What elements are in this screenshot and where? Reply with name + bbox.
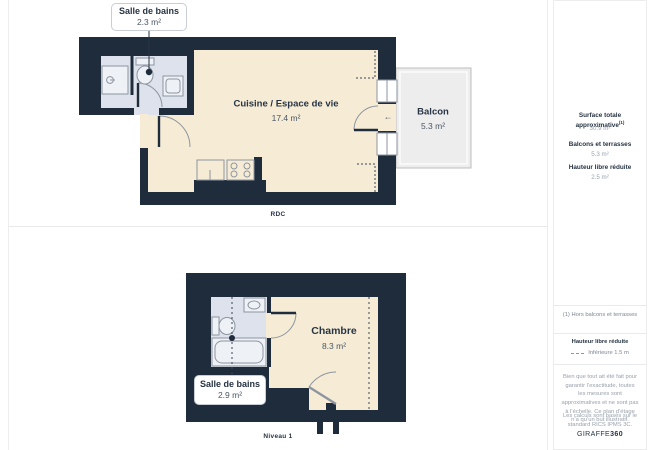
callout-area: 2.9 m² [218, 391, 242, 400]
reduced-height-value: 2.5 m² [554, 174, 646, 181]
floor-niveau1: Salle de bains 2.9 m² Chambre 8.3 m² Niv… [9, 227, 547, 450]
n1-sink-icon [244, 298, 265, 312]
kitchen-sink-icon [197, 160, 224, 180]
bathroom-sink-icon [163, 76, 183, 96]
sidebar-divider [554, 305, 646, 306]
bathroom-callout-n1: Salle de bains 2.9 m² [194, 375, 266, 405]
room-area-bedroom: 8.3 m² [322, 342, 346, 351]
sidebar-divider [554, 364, 646, 365]
room-entry-nook [148, 115, 194, 192]
reduced-height-label: Hauteur libre réduite [554, 164, 646, 172]
total-surface-superscript: (1) [619, 120, 625, 125]
footnote: (1) Hors balcons et terrasses [554, 312, 646, 319]
room-area-living: 17.4 m² [272, 114, 301, 123]
room-area-balcony: 5.3 m² [421, 122, 445, 131]
sidebar-divider [554, 333, 646, 334]
callout-leader-dot [229, 335, 235, 341]
room-label-balcony: Balcon [417, 107, 449, 117]
level-label-niveau1: Niveau 1 [263, 434, 292, 441]
shower-icon [102, 66, 128, 94]
floorplan-page: Salle de bains 2.3 m² Cuisine / Espace d… [0, 0, 650, 450]
total-surface-value: 30.9 m² [554, 125, 646, 132]
stove-icon [227, 160, 254, 180]
legend-text: Inférieure 1.5 m [588, 350, 629, 357]
giraffe360-logo: GIRAFFE360 [554, 431, 646, 439]
logo-suffix-text: 360 [610, 431, 623, 438]
callout-title: Salle de bains [200, 380, 260, 389]
summary-sidebar: Surface totale approximative(1) 30.9 m² … [553, 0, 647, 450]
balcony-outline [396, 68, 471, 168]
callout-leader-dot [146, 69, 152, 75]
entry-door-opening [140, 114, 148, 148]
callout-area: 2.3 m² [137, 18, 161, 27]
niveau1-plan-drawing [9, 227, 547, 449]
room-label-living: Cuisine / Espace de vie [233, 99, 338, 109]
room-label-bedroom: Chambre [311, 326, 357, 337]
level-label-rdc: RDC [271, 212, 286, 219]
legend-label: Hauteur libre réduite [554, 339, 646, 346]
balconies-value: 5.3 m² [554, 151, 646, 158]
balconies-label: Balcons et terrasses [554, 141, 646, 149]
entry-arrow-icon: ← [384, 113, 393, 122]
standard-text: Les calculs sont basés sur le standard R… [554, 412, 646, 429]
floorplans-panel: Salle de bains 2.3 m² Cuisine / Espace d… [8, 0, 548, 450]
callout-title: Salle de bains [119, 7, 179, 16]
floor-rdc: Salle de bains 2.3 m² Cuisine / Espace d… [9, 0, 547, 227]
n1-bathroom-door-opening [266, 313, 272, 338]
bathroom-callout-rdc: Salle de bains 2.3 m² [111, 3, 187, 31]
logo-brand-text: GIRAFFE [577, 431, 610, 438]
legend-row: Inférieure 1.5 m [554, 350, 646, 357]
bathtub-icon [212, 338, 266, 366]
window-icon [377, 80, 397, 102]
window-icon [377, 133, 397, 155]
dashed-line-icon [571, 353, 584, 354]
